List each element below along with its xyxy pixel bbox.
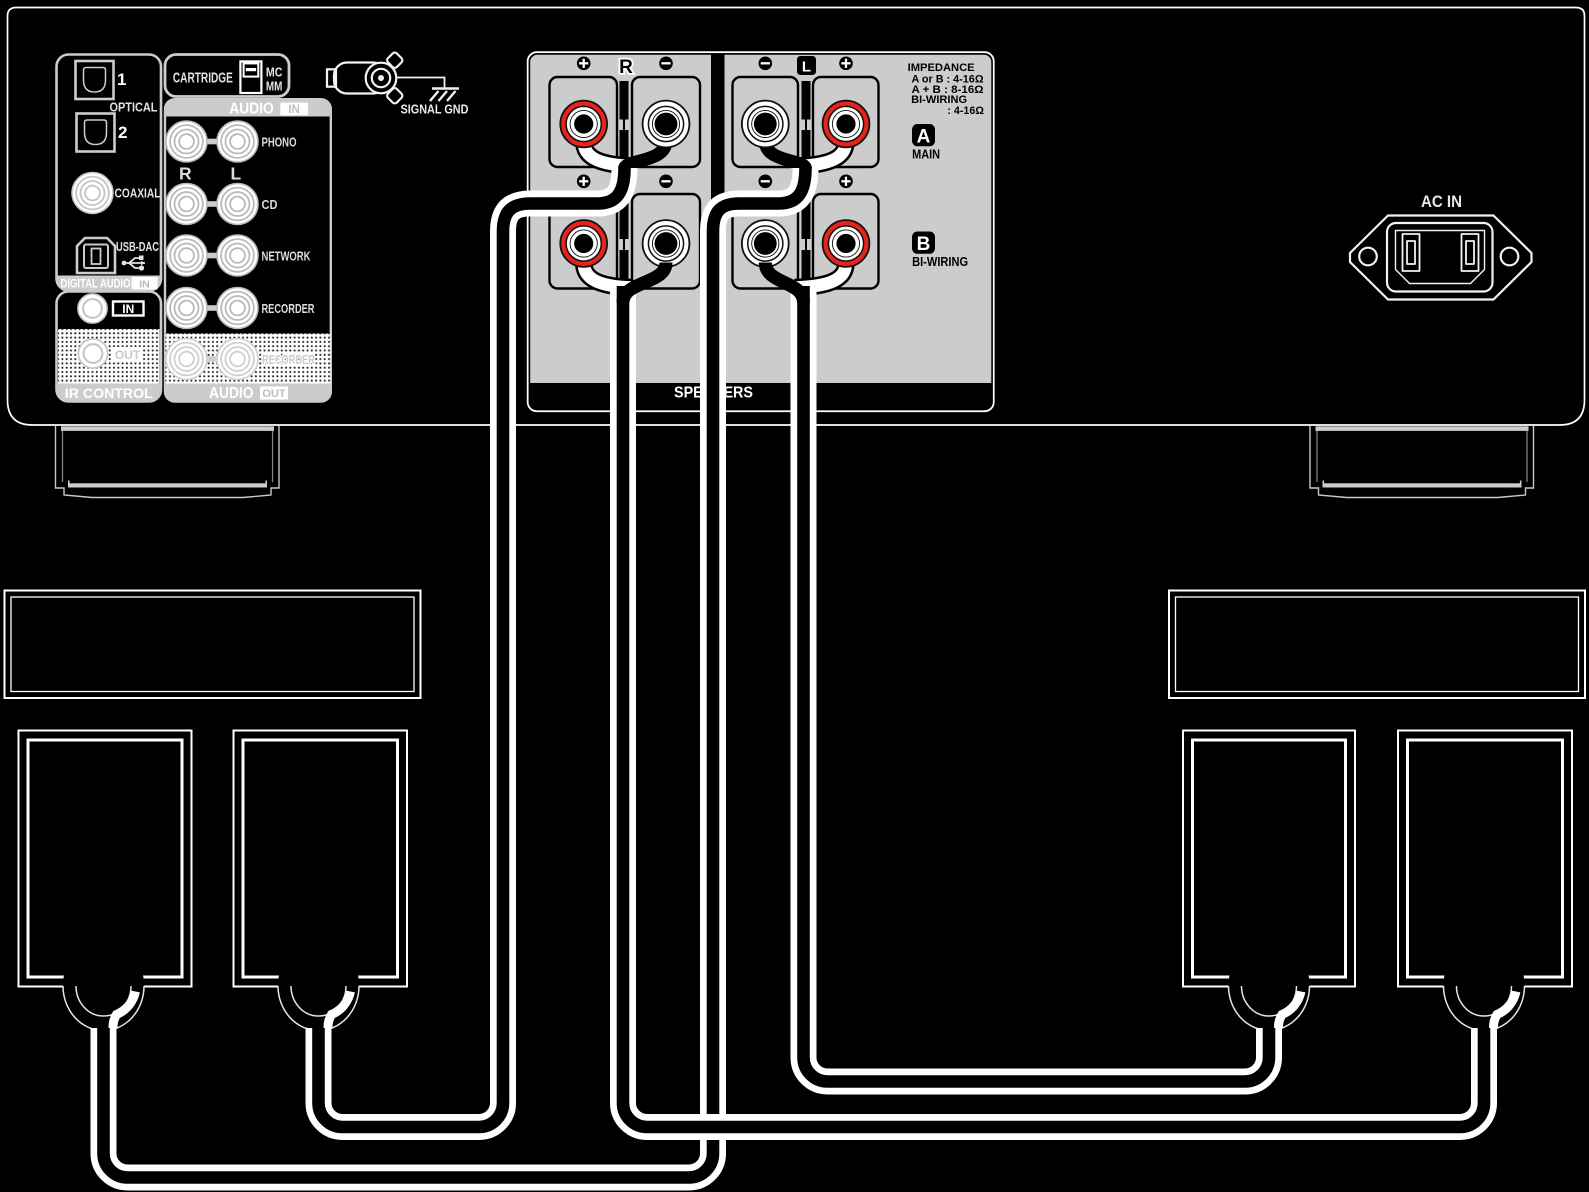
svg-text:OPTICAL: OPTICAL: [110, 100, 158, 115]
svg-text:RECORDER: RECORDER: [262, 301, 315, 316]
svg-text:MC: MC: [266, 65, 283, 80]
svg-text:AUDIO: AUDIO: [209, 385, 254, 402]
svg-text:SIGNAL GND: SIGNAL GND: [401, 102, 469, 117]
svg-text:L: L: [231, 164, 242, 184]
svg-text:R: R: [179, 164, 192, 184]
svg-text:IN: IN: [139, 279, 150, 291]
svg-text:A: A: [917, 126, 931, 147]
svg-text:1: 1: [117, 70, 126, 89]
svg-text:IR CONTROL: IR CONTROL: [65, 385, 153, 401]
svg-text:NETWORK: NETWORK: [262, 248, 311, 263]
svg-text:MAIN: MAIN: [912, 147, 940, 161]
svg-text:AC IN: AC IN: [1421, 192, 1462, 211]
svg-text:IMPEDANCE: IMPEDANCE: [908, 62, 975, 74]
svg-text:DIGITAL AUDIO: DIGITAL AUDIO: [61, 277, 131, 291]
svg-text:L: L: [802, 59, 811, 76]
svg-text:B: B: [917, 234, 931, 255]
svg-text:CARTRIDGE: CARTRIDGE: [173, 70, 233, 87]
svg-text:BI-WIRING: BI-WIRING: [912, 255, 968, 269]
svg-text:OUT: OUT: [115, 348, 141, 362]
svg-text:USB-DAC: USB-DAC: [116, 239, 159, 254]
svg-text:: 4-16Ω: : 4-16Ω: [947, 105, 984, 117]
svg-text:CD: CD: [262, 197, 278, 212]
svg-text:MM: MM: [266, 79, 283, 94]
svg-text:OUT: OUT: [262, 388, 286, 400]
svg-text:R: R: [619, 57, 633, 78]
svg-text:RECORDER: RECORDER: [262, 352, 315, 367]
svg-text:IN: IN: [288, 104, 300, 116]
svg-text:IN: IN: [122, 302, 134, 316]
svg-text:AUDIO: AUDIO: [229, 101, 273, 118]
svg-text:PHONO: PHONO: [262, 134, 297, 149]
svg-text:COAXIAL: COAXIAL: [115, 186, 161, 201]
svg-text:2: 2: [118, 123, 127, 142]
